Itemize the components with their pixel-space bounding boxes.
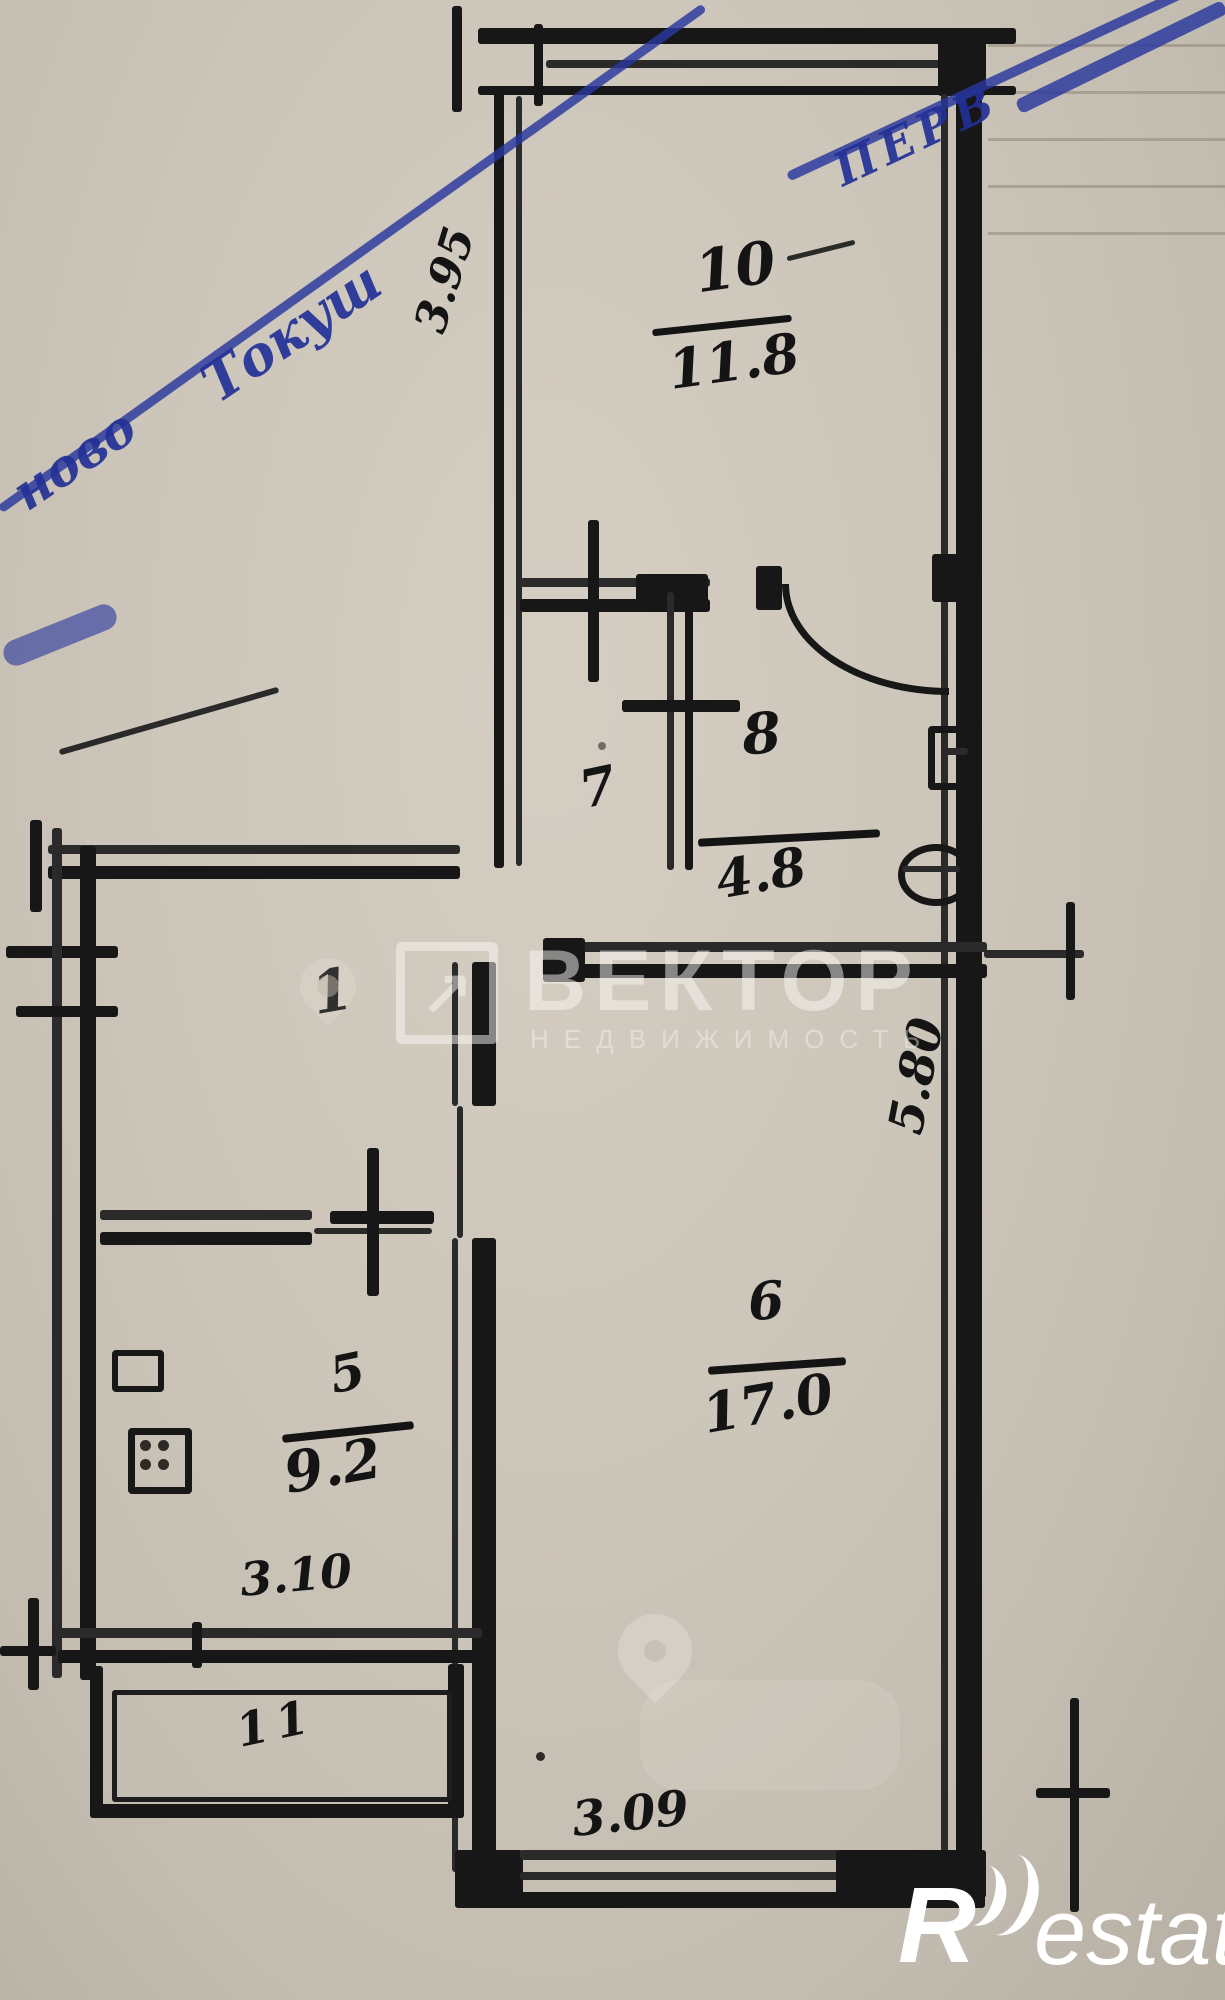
wall-segment	[58, 1628, 482, 1638]
floor-plan-scan: 10 11.8 7 8 4.8 1 5 9.2 6 17.0 11 3.95 5…	[0, 0, 1225, 2000]
vektor-logo: ↗	[396, 942, 498, 1044]
wall-right-outer	[956, 30, 982, 1886]
room6-area: 17.0	[698, 1365, 837, 1441]
balcony-wall	[90, 1804, 464, 1818]
toilet-bowl-detail	[902, 866, 960, 872]
dimension-tick	[1066, 902, 1075, 1000]
wall-room6-left	[472, 1238, 496, 1872]
wall-tick	[30, 820, 42, 912]
dimension-tick	[1036, 1788, 1110, 1798]
wall-tick	[28, 1598, 39, 1690]
wall-tick	[452, 6, 462, 112]
stamp-text-fragment: ново	[1, 397, 147, 522]
wall-segment	[100, 1210, 312, 1220]
door-swing-arc	[782, 584, 949, 695]
toilet-cistern-detail	[942, 748, 968, 755]
stamp-text-fragment: Токуш	[189, 249, 392, 415]
wall-tick	[192, 1622, 202, 1668]
wall-tick	[534, 24, 543, 106]
window-sill	[520, 1872, 840, 1880]
room8-area: 4.8	[712, 841, 810, 908]
pen-dot	[598, 742, 606, 750]
survey-cross	[588, 520, 599, 682]
survey-cross	[6, 946, 118, 958]
vektor-arrow-icon: ↗	[421, 958, 473, 1027]
dim-kitchen-width: 3.10	[238, 1547, 354, 1603]
wall-corridor-bath	[667, 592, 674, 870]
wall-segment	[478, 28, 1016, 44]
room5-area: 9.2	[280, 1430, 386, 1502]
vektor-name: ВЕКТОР	[524, 932, 921, 1031]
survey-cross	[622, 700, 740, 712]
window-sill	[546, 60, 956, 68]
survey-cross	[330, 1211, 434, 1224]
room10-area: 11.8	[665, 325, 803, 397]
wall-tick	[0, 1646, 56, 1656]
restate-logo: R estate	[898, 1862, 1225, 2000]
door-post	[756, 566, 782, 610]
stove-burner	[158, 1440, 169, 1451]
pen-scratch	[59, 687, 280, 756]
wall-segment	[520, 1850, 840, 1860]
wall-left-inner	[80, 846, 96, 1680]
ruled-paper-lines	[988, 0, 1225, 240]
dim-room6-width: 3.09	[570, 1784, 691, 1844]
stove-burner	[140, 1440, 151, 1451]
wall-left-outer	[52, 828, 62, 1678]
restate-logo-text: estate	[1034, 1878, 1225, 1986]
wall-corridor-bath	[685, 592, 693, 870]
survey-cross	[16, 1006, 118, 1017]
faint-watermark-blob	[640, 1680, 900, 1790]
vektor-subtitle: НЕДВИЖИМОСТЬ	[530, 1024, 935, 1055]
toilet-cistern-icon	[928, 726, 982, 790]
balcony-wall	[90, 1666, 103, 1818]
wall-segment	[58, 1650, 482, 1663]
wall-segment	[478, 86, 1016, 95]
door-threshold	[457, 1106, 463, 1238]
room5-number: 5	[325, 1345, 369, 1401]
pen-dot	[536, 1752, 545, 1761]
room6-number: 6	[746, 1275, 787, 1330]
room10-number: 10	[691, 233, 779, 302]
room7-number: 7	[575, 759, 621, 817]
wall-room10-left	[494, 86, 504, 868]
wall-segment	[48, 866, 460, 879]
stamp-ink-blob	[0, 600, 121, 669]
stove-burner	[158, 1459, 169, 1470]
room8-number: 8	[740, 704, 784, 763]
wall-segment	[48, 845, 460, 854]
wall-segment	[100, 1232, 312, 1245]
toilet-bowl-icon	[898, 844, 974, 906]
kitchen-sink-icon	[112, 1350, 164, 1392]
dim-room10-width: 3.95	[409, 222, 482, 337]
wall-room10-left-inner	[516, 96, 522, 866]
stove-burner	[140, 1459, 151, 1470]
pen-scratch	[786, 240, 855, 262]
